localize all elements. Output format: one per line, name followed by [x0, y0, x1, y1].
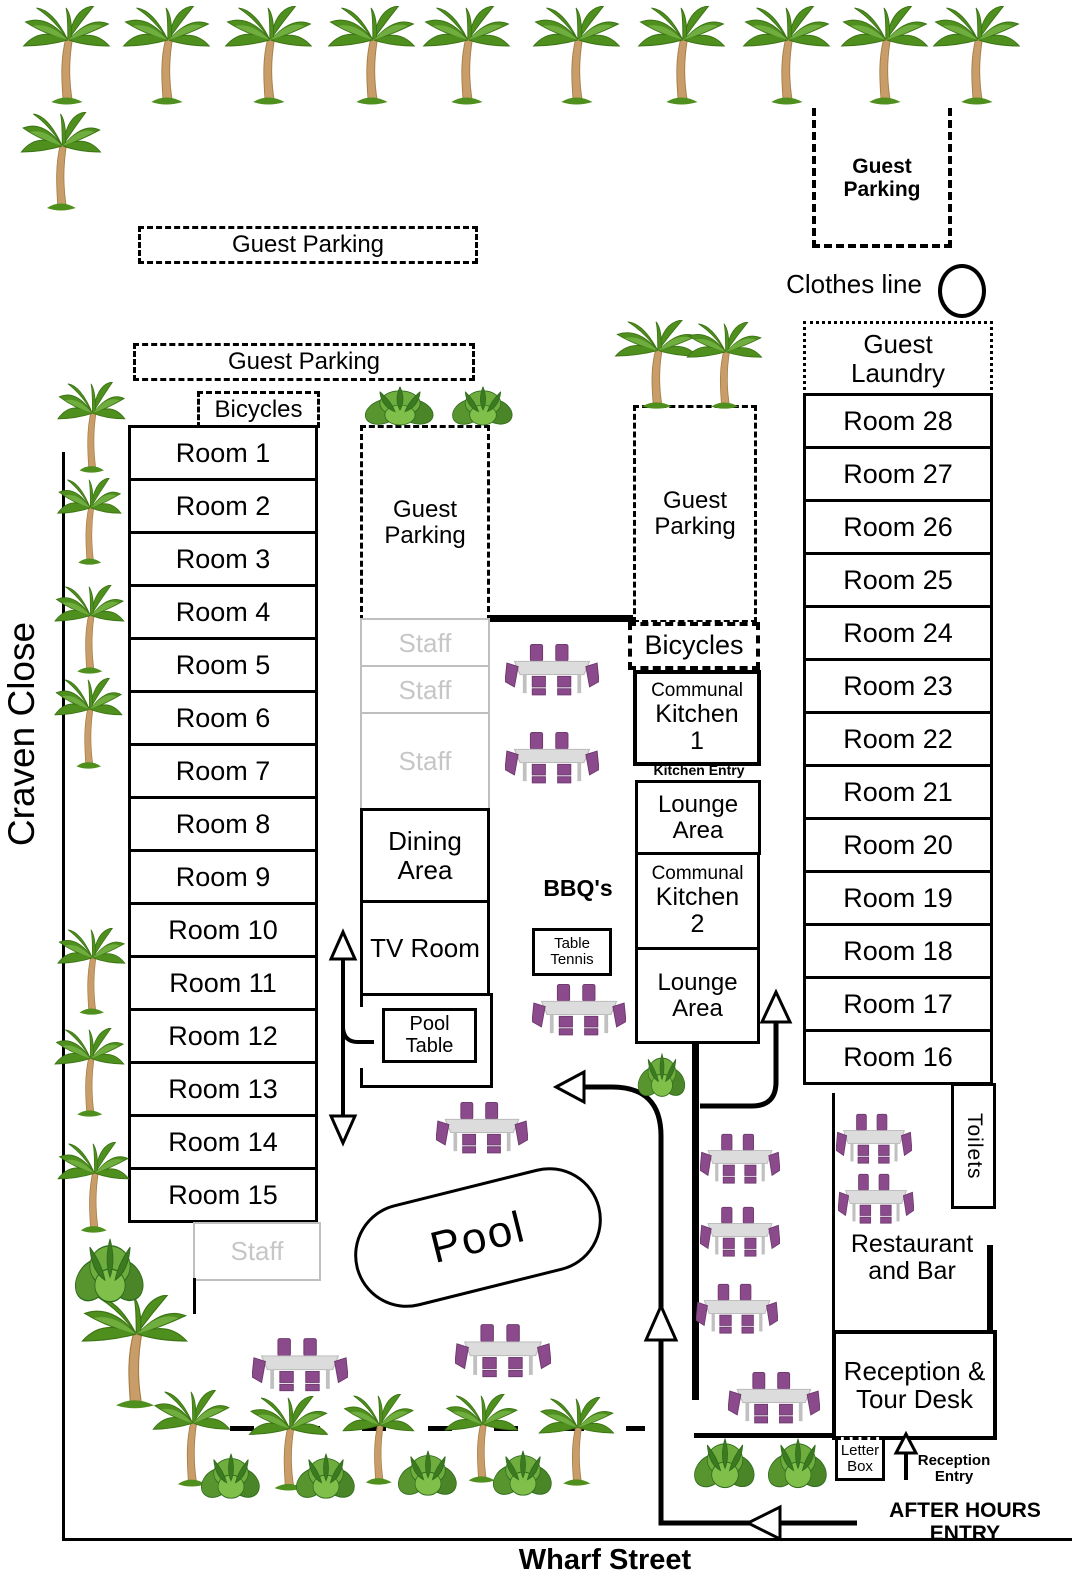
palm-tree-icon [530, 6, 622, 106]
palm-tree-icon [55, 382, 127, 474]
reception-label: Reception & Tour Desk [840, 1357, 990, 1413]
reception-entry-label: Reception Entry [916, 1446, 992, 1492]
picnic-table-icon [532, 980, 626, 1042]
games-area-wall-upper [360, 993, 363, 1007]
room-box-room-3: Room 3 [128, 531, 318, 587]
communal-kitchen-number: 1 [690, 728, 704, 755]
pool-label: Pool [426, 1203, 531, 1272]
room-box-room-6: Room 6 [128, 690, 318, 746]
room-box-room-7: Room 7 [128, 743, 318, 799]
picnic-table-icon [252, 1334, 348, 1398]
room-box-room-20: Room 20 [803, 817, 993, 873]
shrub-icon [633, 1046, 691, 1102]
guest-laundry: Guest Laundry [803, 321, 993, 396]
room-box-room-13: Room 13 [128, 1061, 318, 1117]
staff-area-bottom: Staff [193, 1222, 321, 1281]
bbqs-label: BBQ's [535, 874, 621, 904]
room-box-room-1: Room 1 [128, 425, 318, 481]
room-box-room-18: Room 18 [803, 923, 993, 979]
palm-tree-icon [325, 6, 417, 106]
communal-kitchen-number: 2 [691, 911, 705, 938]
picnic-table-icon [700, 1130, 780, 1190]
shrub-icon [358, 380, 442, 430]
after-hours-entry-label: AFTER HOURS ENTRY [860, 1506, 1070, 1538]
wall-segment-top [490, 615, 635, 622]
room-box-room-10: Room 10 [128, 902, 318, 958]
communal-kitchen-label-line2: Kitchen [655, 701, 738, 728]
picnic-table-icon [455, 1320, 551, 1384]
pool-table-label: Pool Table [400, 1014, 460, 1057]
shrub-icon [762, 1430, 834, 1494]
palm-tree-icon [18, 112, 103, 212]
palm-tree-icon [420, 6, 512, 106]
picnic-table-icon [505, 640, 599, 702]
room-box-room-12: Room 12 [128, 1008, 318, 1064]
room-box-room-25: Room 25 [803, 552, 993, 608]
palm-tree-icon [52, 585, 126, 675]
room-box-room-14: Room 14 [128, 1114, 318, 1170]
room-box-room-22: Room 22 [803, 711, 993, 767]
room-box-room-15: Room 15 [128, 1167, 318, 1223]
picnic-table-icon [836, 1110, 912, 1170]
room-box-room-4: Room 4 [128, 584, 318, 640]
guest-parking-label: Guest Parking [232, 232, 384, 258]
lounge-area-label: Lounge Area [650, 970, 745, 1022]
tv-room: TV Room [360, 900, 490, 996]
room-box-room-5: Room 5 [128, 637, 318, 693]
dining-area: Dining Area [360, 808, 490, 903]
toilets: Toilets [951, 1083, 996, 1209]
palm-tree-icon [20, 6, 112, 106]
lounge-area-1: Lounge Area [635, 780, 761, 855]
table-tennis: Table Tennis [532, 928, 612, 976]
communal-kitchen-2: Communal Kitchen 2 [635, 852, 760, 950]
picnic-table-icon [696, 1280, 778, 1340]
palm-tree-icon [120, 6, 212, 106]
letter-box-label: Letter Box [839, 1443, 881, 1475]
bicycles-area-right: Bicycles [628, 622, 760, 670]
tv-room-label: TV Room [370, 934, 480, 962]
communal-kitchen-label-line1: Communal [651, 681, 743, 702]
games-area-wall-lower [360, 1068, 363, 1088]
guest-parking-label: Guest Parking [648, 488, 743, 540]
palm-tree-icon [684, 322, 764, 410]
staff-label: Staff [398, 629, 451, 657]
reception-tour-desk: Reception & Tour Desk [832, 1330, 997, 1440]
palm-tree-icon [55, 1142, 131, 1234]
restaurant-right-wall [987, 1245, 993, 1337]
staff-area-2: Staff [360, 665, 490, 715]
staff-area-3: Staff [360, 712, 490, 811]
communal-kitchen-label-line1: Communal [652, 864, 744, 885]
lounge-area-label: Lounge Area [651, 792, 746, 844]
guest-parking-area-top-right: Guest Parking [812, 108, 952, 248]
room-box-room-2: Room 2 [128, 478, 318, 534]
room-box-room-11: Room 11 [128, 955, 318, 1011]
street-label-craven-close: Craven Close [0, 589, 44, 879]
guest-parking-area-top-left: Guest Parking [138, 226, 478, 264]
palm-tree-icon [55, 928, 127, 1016]
room-box-room-17: Room 17 [803, 976, 993, 1032]
guest-parking-label: Guest Parking [228, 349, 380, 375]
shrub-icon [68, 1228, 152, 1310]
bicycles-area-left: Bicycles [197, 391, 320, 428]
rooms-left-column: Room 1Room 2Room 3Room 4Room 5Room 6Room… [128, 425, 318, 1223]
room-box-room-26: Room 26 [803, 499, 993, 555]
letter-box: Letter Box [835, 1437, 885, 1481]
room-box-room-28: Room 28 [803, 393, 993, 449]
staff-label: Staff [398, 676, 451, 704]
picnic-table-icon [700, 1203, 780, 1263]
hostel-site-map: Craven Close Wharf Street Guest Parking … [0, 0, 1072, 1581]
communal-kitchen-label-line2: Kitchen [656, 884, 739, 911]
guest-parking-area-center: Guest Parking [633, 405, 757, 623]
room-box-room-9: Room 9 [128, 849, 318, 905]
street-label-wharf-street: Wharf Street [455, 1542, 755, 1580]
shrub-icon [290, 1446, 362, 1504]
restaurant-and-bar-label-text: Restaurant and Bar [847, 1231, 977, 1286]
shrub-icon [446, 380, 520, 430]
palm-tree-icon [55, 478, 123, 566]
toilets-label: Toilets [962, 1113, 985, 1180]
staff-label: Staff [398, 747, 451, 775]
palm-tree-icon [838, 6, 930, 106]
shrub-icon [195, 1446, 267, 1504]
dining-area-label: Dining Area [380, 827, 470, 883]
palm-tree-icon [52, 678, 124, 770]
staff-area-1: Staff [360, 618, 490, 668]
picnic-table-icon [838, 1170, 914, 1230]
room-box-room-24: Room 24 [803, 605, 993, 661]
room-box-room-8: Room 8 [128, 796, 318, 852]
lounge-area-2: Lounge Area [635, 947, 760, 1044]
room-box-room-19: Room 19 [803, 870, 993, 926]
room-box-room-16: Room 16 [803, 1029, 993, 1085]
restaurant-left-wall [832, 1093, 835, 1338]
communal-kitchen-1: Communal Kitchen 1 [633, 670, 761, 766]
guest-parking-area-middle: Guest Parking [360, 425, 490, 621]
palm-tree-icon [222, 6, 314, 106]
bicycles-label: Bicycles [214, 397, 302, 423]
bicycles-label: Bicycles [644, 631, 743, 660]
picnic-table-icon [728, 1368, 820, 1430]
shrub-icon [392, 1443, 464, 1501]
room-box-room-27: Room 27 [803, 446, 993, 502]
picnic-table-icon [436, 1098, 528, 1160]
shrub-icon [487, 1443, 559, 1501]
clothes-line-loop-icon [938, 264, 986, 318]
staff-label: Staff [230, 1237, 283, 1265]
rooms-right-column: Room 28Room 27Room 26Room 25Room 24Room … [803, 393, 993, 1085]
kitchen-entry-label: Kitchen Entry [636, 762, 762, 780]
table-tennis-label: Table Tennis [545, 936, 600, 968]
room-box-room-21: Room 21 [803, 764, 993, 820]
clothes-line-label: Clothes line [778, 266, 930, 302]
palm-tree-icon [52, 1028, 126, 1118]
pool-table: Pool Table [382, 1008, 477, 1063]
palm-tree-icon [930, 6, 1022, 106]
fence-line-stub [193, 1278, 196, 1314]
guest-parking-label: Guest Parking [832, 156, 932, 201]
room-box-room-23: Room 23 [803, 658, 993, 714]
picnic-table-icon [505, 728, 599, 790]
palm-tree-icon [740, 6, 832, 106]
shrub-icon [688, 1430, 762, 1494]
palm-tree-icon [635, 6, 727, 106]
guest-parking-label: Guest Parking [378, 497, 473, 549]
guest-laundry-label: Guest Laundry [836, 330, 961, 386]
guest-parking-area-mid-left: Guest Parking [133, 343, 475, 381]
pool: Pool [343, 1156, 613, 1319]
